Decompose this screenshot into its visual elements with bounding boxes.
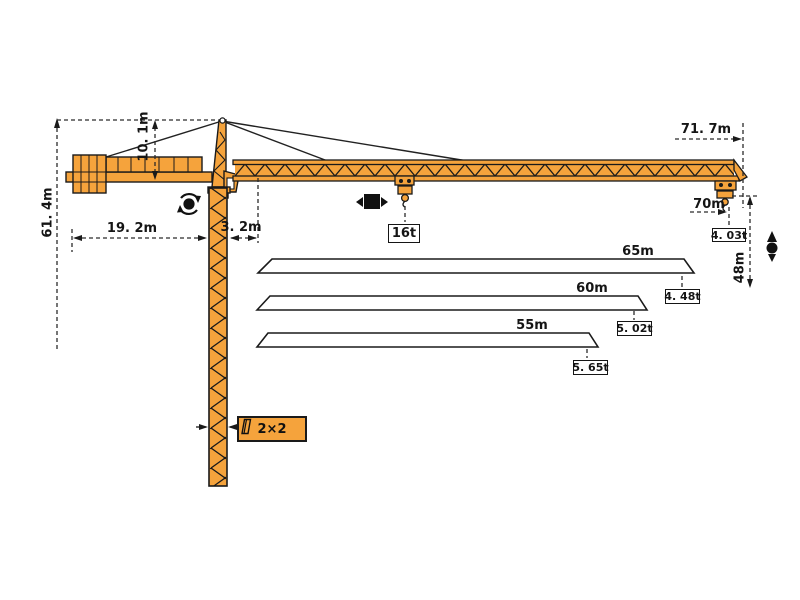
jib-60m-label: 60m	[572, 281, 612, 296]
tip-radius-label: 70m	[689, 197, 729, 212]
tip-load-70m-box: 4. 03t	[712, 228, 746, 242]
apex-pin	[220, 118, 225, 123]
hoisting-icon	[767, 231, 778, 262]
hook-travel-label: 48m	[733, 248, 748, 288]
jib-65m-label: 65m	[618, 244, 658, 259]
tower-head	[208, 118, 239, 198]
tip-load-60m-box: 5. 02t	[617, 321, 652, 336]
slewing-rotation-icon	[177, 194, 201, 214]
jib-bar-65m	[258, 259, 694, 273]
counter-jib-length-label: 19. 2m	[102, 221, 162, 236]
rear-offset-label: 3. 2m	[216, 220, 266, 235]
jib-55m-label: 55m	[512, 318, 552, 333]
jib-bar-55m	[257, 333, 598, 347]
trolley-hook	[395, 176, 414, 207]
max-load-box: 16t	[388, 224, 420, 243]
overall-radius-label: 71. 7m	[676, 122, 736, 137]
crane-diagram: 61. 4m 10. 1m 48m 19. 2m 3. 2m 71. 7m 70…	[0, 0, 800, 600]
mast-section-label: 2×2	[258, 422, 287, 437]
mast-section-icon	[239, 418, 252, 435]
jib	[233, 160, 747, 181]
trolley-travel-icon	[356, 194, 388, 209]
tip-load-55m-box: 5. 65t	[573, 360, 608, 375]
tip-load-65m-box: 4. 48t	[665, 289, 700, 304]
jib-bar-60m	[257, 296, 647, 310]
tower-head-height-label: 10. 1m	[137, 110, 152, 164]
mast-section-box: 2×2	[237, 416, 307, 442]
counterweights	[73, 155, 106, 193]
total-height-label: 61. 4m	[41, 186, 56, 240]
